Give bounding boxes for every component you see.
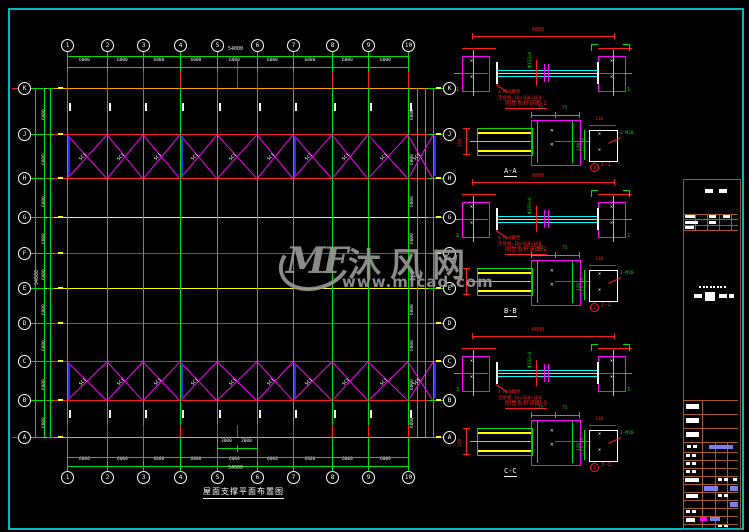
section-0-beam-axis	[470, 141, 531, 142]
tierod-0-stub-l	[454, 73, 462, 74]
col-leader-top-10	[408, 51, 409, 58]
section-2-column-flange-l	[537, 421, 538, 463]
section-0-column-flange-r	[572, 121, 573, 163]
tierod-1-cut-mark-r: 2	[627, 236, 630, 237]
titleblock-line	[684, 414, 738, 415]
tierod-2-cut-flag-r	[629, 344, 630, 351]
tierod-0-column-axis-l	[473, 50, 474, 96]
section-2-beam-axis	[470, 441, 531, 442]
titleblock-text-blob	[686, 432, 699, 437]
col-red-top-8	[332, 72, 333, 88]
titleblock-text-blob	[295, 410, 297, 418]
left-eave-line-1	[35, 88, 36, 437]
section-2-dim-top-t1	[531, 412, 532, 418]
top-bay-dim-4: 6000	[229, 60, 240, 61]
row-tick-J	[58, 133, 63, 135]
section-1-bolt-mark-1: ✕	[550, 270, 554, 271]
top-bay-dim-0: 6000	[79, 60, 90, 61]
section-0-dim-top-t3	[579, 112, 580, 118]
section-0-plate-dim-left	[584, 130, 585, 160]
tierod-0-cut-flag-r	[629, 44, 630, 51]
titleblock-text-blob	[685, 226, 694, 229]
tierod-2-dim-total	[472, 336, 614, 337]
titleblock-text-blob	[706, 286, 708, 288]
col-red-bottom-9	[368, 425, 369, 437]
grid-col-line-5	[217, 58, 218, 455]
row-tick-B	[58, 399, 63, 401]
grid-bubble-right-C: C	[443, 355, 456, 368]
bottom-bay-dim-5: 6000	[267, 459, 278, 460]
tierod-1-coupler-b	[548, 210, 549, 228]
right-bay-dim-6: 6000	[412, 340, 413, 351]
row-tick-A	[58, 436, 63, 438]
plan-title: 屋面支撑平面布置图	[203, 486, 284, 499]
tierod-2-column-axis-l	[473, 350, 474, 396]
titleblock-text-blob	[685, 221, 698, 224]
titleblock-text-blob	[109, 410, 111, 418]
grid-bubble-left-J: J	[18, 128, 31, 141]
tierod-0-cut-mark-r: 1	[627, 90, 630, 91]
tierod-1-note-1: 4-M20螺栓	[498, 238, 521, 239]
col-red-bottom-10	[408, 425, 409, 437]
tierod-1-cut-flag-l	[591, 190, 592, 197]
section-2-column-flange-r	[572, 421, 573, 463]
left-dim-line	[50, 88, 51, 437]
titleblock-text-blob	[686, 470, 690, 473]
top-bay-dim-8: 6000	[380, 60, 391, 61]
tierod-1-column-mid-l	[462, 219, 488, 220]
tierod-1-column-axis-l	[473, 196, 474, 242]
grid-bubble-right-K: K	[443, 82, 456, 95]
tierod-2-cut-flag-l2	[591, 344, 598, 345]
titleblock-line	[684, 460, 738, 461]
row-tick-r-B	[436, 399, 441, 401]
tierod-1-column-l	[462, 202, 490, 238]
grid-bubble-right-D: D	[443, 317, 456, 330]
tierod-1-dim-total-text: 6000	[532, 176, 544, 177]
tierod-0-cut-flag-r2	[623, 44, 630, 45]
brace-blue-strut	[181, 363, 183, 398]
tierod-0-dim-tick-l	[472, 33, 473, 39]
titleblock-text-blob	[370, 410, 372, 418]
grid-col-line-3	[143, 58, 144, 455]
tierod-2-bolt-mark-l2: ✕	[470, 377, 473, 378]
row-tick-r-G	[436, 216, 441, 218]
tierod-1-pipe-dim	[536, 206, 537, 232]
tierod-2-dim-sub-r	[598, 348, 632, 349]
titleblock-text-blob	[685, 478, 699, 482]
section-2-plate-dim-top	[589, 425, 616, 426]
titleblock-text-blob	[410, 103, 412, 111]
section-1-label: B-B	[504, 307, 517, 317]
section-2-label: C-C	[504, 467, 517, 477]
grid-bubble-right-J: J	[443, 128, 456, 141]
section-2-bolt-mark-1: ✕	[550, 430, 554, 431]
section-2-plate-bolt-1: ✕	[598, 434, 601, 435]
titleblock-vline	[719, 214, 720, 230]
section-0-dim-v-tick1	[463, 128, 470, 129]
titleblock-text-blob	[699, 286, 701, 288]
grid-bubble-bottom-6: 6	[251, 471, 264, 484]
grid-row-leader-C	[29, 361, 44, 362]
titleblock-text-blob	[717, 286, 719, 288]
col-red-bottom-6	[257, 425, 258, 437]
row-tick-G	[58, 216, 63, 218]
tierod-2-pipe-spec: Φ133×4	[530, 352, 531, 368]
section-1-plate-label: 2-2	[601, 305, 611, 306]
titleblock-text-blob	[686, 494, 698, 498]
titleblock-text-blob	[182, 103, 184, 111]
section-1-dim-top-a: 75	[538, 248, 543, 249]
tierod-0-pipe-dim	[536, 60, 537, 86]
top-bay-dim-7: 6000	[342, 60, 353, 61]
section-2-beam-flange-top	[478, 432, 531, 434]
section-2-dim-top-t2	[555, 412, 556, 418]
tierod-2-cut-mark-r: 3	[627, 390, 630, 391]
col-red-top-4	[180, 72, 181, 88]
col-red-top-3	[143, 72, 144, 88]
tierod-2-pipe-dim	[536, 360, 537, 386]
tierod-1-bolt-mark-l2: ✕	[470, 223, 473, 224]
titleblock-line	[684, 428, 738, 429]
section-0-beam-flange-top	[478, 132, 531, 134]
col-red-bottom-2	[107, 425, 108, 437]
tierod-0-bolt-mark-l1: ✕	[470, 61, 473, 62]
grid-bubble-top-8: 8	[326, 39, 339, 52]
section-1-dim-top-t2	[555, 252, 556, 258]
grid-bubble-bottom-3: 3	[137, 471, 150, 484]
row-tick-K	[58, 87, 63, 89]
titleblock-text-blob	[718, 494, 722, 497]
titleblock-line	[684, 508, 738, 509]
section-1-bolt-note: 2-M20	[620, 273, 634, 274]
titleblock-text-blob	[295, 103, 297, 111]
tierod-1-column-axis-r	[613, 196, 614, 242]
titleblock-text-blob	[703, 286, 705, 288]
section-0-bolt-note: 3-M20	[620, 133, 634, 134]
tierod-2-dim-sub-l	[462, 348, 496, 349]
tierod-2-dim-tick-r	[614, 333, 615, 339]
titleblock-text-blob	[729, 294, 734, 298]
grid-bubble-bottom-7: 7	[287, 471, 300, 484]
titleblock-text-blob	[700, 517, 707, 521]
section-2-dim-v-tick1	[463, 428, 470, 429]
col-red-bottom-3	[143, 425, 144, 437]
grid-bubble-top-6: 6	[251, 39, 264, 52]
titleblock-text-blob	[709, 445, 733, 449]
titleblock-text-blob	[219, 410, 221, 418]
section-2-plate-dim-w: 110	[595, 419, 603, 420]
titleblock-line	[684, 400, 738, 401]
section-0-plate-label-circle: 1	[590, 163, 599, 172]
titleblock-vline	[702, 400, 703, 528]
grid-bubble-top-4: 4	[174, 39, 187, 52]
titleblock-text-blob	[686, 418, 699, 423]
titleblock-text-blob	[705, 292, 715, 301]
bottom-bay-dim-8: 6000	[380, 459, 391, 460]
brace-label: SC1	[306, 379, 312, 385]
grid-bubble-bottom-2: 2	[101, 471, 114, 484]
bottom-dim-line-bays	[67, 457, 408, 458]
grid-bubble-top-2: 2	[101, 39, 114, 52]
grid-row-line-H	[33, 178, 446, 179]
titleblock-text-blob	[713, 286, 715, 288]
top-dim-tick-10	[408, 63, 409, 71]
col-red-top-7	[293, 72, 294, 88]
grid-bubble-right-H: H	[443, 172, 456, 185]
tierod-1-bolt-mark-r1: ✕	[610, 207, 613, 208]
row-tick-r-H	[436, 177, 441, 179]
mid-col-red-bottom	[237, 425, 238, 437]
tierod-0-column-axis-r	[613, 50, 614, 96]
section-0-plate-dim-h: 120	[579, 143, 580, 151]
section-1-leader	[555, 281, 591, 282]
titleblock-line	[684, 230, 738, 231]
section-0-leader	[555, 141, 591, 142]
titleblock-text-blob	[259, 410, 261, 418]
section-1-plate-dim-left	[584, 270, 585, 300]
tierod-0-end-plate-r	[597, 62, 599, 84]
grid-bubble-top-5: 5	[211, 39, 224, 52]
brace-blue-strut	[181, 136, 183, 176]
col-red-bottom-7	[293, 425, 294, 437]
mid-dim-2: 3000	[241, 441, 252, 442]
tierod-0-dim-total-text: 6000	[532, 30, 544, 31]
grid-bubble-top-10: 10	[402, 39, 415, 52]
section-0-plate-label: 1-1	[601, 165, 611, 166]
titleblock-text-blob	[709, 221, 716, 224]
section-2-bolt-mark-2: ✕	[550, 444, 554, 445]
row-tick-E	[58, 287, 63, 289]
grid-bubble-left-D: D	[18, 317, 31, 330]
titleblock-text-blob	[705, 189, 713, 193]
grid-bubble-right-A: A	[443, 431, 456, 444]
section-0-label: A-A	[504, 167, 517, 177]
titleblock-vline	[731, 214, 732, 230]
bottom-bay-dim-3: 6000	[191, 459, 202, 460]
grid-row-line-A	[33, 437, 446, 438]
tierod-1-dim-tick-r	[614, 179, 615, 185]
section-2-side-note: PL-10	[582, 437, 583, 451]
section-1-column-flange-r	[572, 261, 573, 303]
brace-blue-strut	[294, 363, 296, 398]
titleblock-text-blob	[724, 478, 728, 481]
tierod-0-column-mid-l	[462, 73, 488, 74]
row-tick-r-K	[436, 87, 441, 89]
tierod-1-dim-sub-r	[598, 194, 632, 195]
titleblock-text-blob	[693, 445, 697, 448]
mid-dim-tick-a	[217, 445, 218, 452]
section-1-plate-label-circle: 2	[590, 303, 599, 312]
section-0-plate-outline	[589, 130, 618, 162]
titleblock-text-blob	[719, 294, 727, 298]
titleblock-text-blob	[692, 510, 696, 513]
grid-bubble-top-7: 7	[287, 39, 300, 52]
right-bay-dim-8: 6000	[412, 417, 413, 428]
tierod-0-bolt-mark-l2: ✕	[470, 77, 473, 78]
top-bay-dim-1: 6000	[117, 60, 128, 61]
tierod-2-column-mid-l	[462, 373, 488, 374]
tierod-2-bolt-mark-r1: ✕	[610, 361, 613, 362]
section-1-dim-top-b: 75	[562, 248, 567, 249]
row-tick-C	[58, 360, 63, 362]
section-1-side-note: PL-10	[582, 277, 583, 291]
right-bay-dim-5: 6000	[412, 304, 413, 315]
tierod-1-end-plate-r	[597, 208, 599, 230]
section-1-plate-dim-h: 120	[579, 283, 580, 291]
grid-bubble-bottom-8: 8	[326, 471, 339, 484]
section-2-plate-label-circle: 3	[590, 463, 599, 472]
col-red-top-5	[217, 72, 218, 88]
tierod-1-cut-flag-r2	[623, 190, 630, 191]
section-2-dim-top-a: 75	[538, 408, 543, 409]
titleblock-text-blob	[692, 462, 696, 465]
tierod-1-stub-r	[624, 219, 632, 220]
section-2-plate-dim-h: 120	[579, 443, 580, 451]
grid-col-line-2	[107, 58, 108, 455]
tierod-2-dim-tick-l	[472, 333, 473, 339]
brace-blue-strut	[434, 363, 436, 398]
titleblock-text-blob	[730, 486, 738, 491]
grid-row-line-B	[33, 400, 446, 401]
tierod-0-cut-mark-l: 1	[456, 90, 459, 91]
left-eave-line-2	[44, 88, 45, 437]
grid-bubble-top-3: 3	[137, 39, 150, 52]
tierod-0-cut-flag-l2	[591, 44, 598, 45]
titleblock-text-blob	[685, 215, 695, 218]
section-2-dim-v-text: 150	[460, 439, 461, 447]
section-1-bolt-mark-2: ✕	[550, 284, 554, 285]
tierod-0-bolt-mark-r1: ✕	[610, 61, 613, 62]
section-0-dim-v-line	[466, 128, 467, 154]
col-red-top-2	[107, 72, 108, 88]
grid-bubble-top-9: 9	[362, 39, 375, 52]
titleblock-line	[684, 484, 738, 485]
titleblock-text-blob	[710, 517, 720, 521]
tierod-0-coupler-a	[544, 64, 545, 82]
brace-label: SC1	[192, 379, 198, 385]
titleblock-text-blob	[686, 454, 690, 457]
titleblock-text-blob	[720, 286, 722, 288]
grid-bubble-left-B: B	[18, 394, 31, 407]
titleblock-line	[684, 524, 738, 525]
titleblock-text-blob	[686, 404, 699, 409]
grid-bubble-left-F: F	[18, 247, 31, 260]
brace-blue-strut	[68, 363, 70, 398]
section-0-dim-top-t1	[531, 112, 532, 118]
tierod-2-stub-r	[624, 373, 632, 374]
right-bay-dim-0: 6000	[412, 109, 413, 120]
titleblock-line	[684, 492, 738, 493]
titleblock-text-blob	[710, 286, 712, 288]
titleblock-text-blob	[182, 410, 184, 418]
bottom-bay-dim-6: 6000	[305, 459, 316, 460]
grid-row-line-K	[33, 88, 446, 89]
titleblock-text-blob	[719, 189, 727, 193]
tierod-0-note-1: 4-M20螺栓	[498, 92, 521, 93]
titleblock-text-blob	[687, 445, 691, 448]
section-1-plate-outline	[589, 270, 618, 302]
grid-bubble-bottom-10: 10	[402, 471, 415, 484]
section-2-plate-dim-left	[584, 430, 585, 460]
titleblock-text-blob	[692, 470, 696, 473]
tierod-2-stub-l	[454, 373, 462, 374]
tierod-2-coupler-b	[548, 364, 549, 382]
bottom-dim-tick-10	[408, 454, 409, 461]
tierod-2-end-plate-r	[597, 362, 599, 384]
grid-bubble-left-G: G	[18, 211, 31, 224]
titleblock-text-blob	[145, 410, 147, 418]
col-red-top-9	[368, 72, 369, 88]
titleblock-text-blob	[718, 525, 722, 527]
titleblock-text-blob	[69, 103, 71, 111]
top-dim-line-total	[67, 56, 408, 57]
section-0-plate-bolt-1: ✕	[598, 134, 601, 135]
section-0-dim-top-a: 75	[538, 108, 543, 109]
mid-dim-tick-c	[257, 445, 258, 452]
tierod-2-note-1: 4-M20螺栓	[498, 392, 521, 393]
section-2-dim-top-b: 75	[562, 408, 567, 409]
col-red-top-6	[257, 72, 258, 88]
titleblock-vline	[715, 442, 716, 528]
section-1-plate-bolt-2: ✕	[598, 290, 601, 291]
top-bay-dim-5: 6000	[267, 60, 278, 61]
titleblock-text-blob	[694, 294, 702, 298]
col-red-bottom-4	[180, 425, 181, 437]
titleblock-text-blob	[686, 518, 695, 522]
tierod-2-bolt-mark-r2: ✕	[610, 377, 613, 378]
grid-row-leader-F	[29, 253, 44, 254]
tierod-1-dim-total	[472, 182, 614, 183]
titleblock-text-blob	[219, 103, 221, 111]
titleblock-line	[684, 468, 738, 469]
col-red-bottom-8	[332, 425, 333, 437]
section-0-plate-dim-w: 110	[595, 119, 603, 120]
titleblock-text-blob	[145, 103, 147, 111]
section-0-side-note: PL-10	[582, 137, 583, 151]
titleblock-text-blob	[334, 410, 336, 418]
tierod-1-dim-sub-l	[462, 194, 496, 195]
titleblock-text-blob	[718, 478, 722, 481]
tierod-2-column-axis-r	[613, 350, 614, 396]
bottom-bay-dim-1: 6000	[117, 459, 128, 460]
section-1-dim-top-t3	[579, 252, 580, 258]
grid-row-line-G	[33, 217, 446, 218]
section-1-plate-bolt-1: ✕	[598, 274, 601, 275]
brace-label: SC1	[414, 379, 420, 385]
bottom-bay-dim-4: 6000	[229, 459, 240, 460]
tierod-1-cut-flag-l2	[591, 190, 598, 191]
top-bay-dim-2: 6000	[154, 60, 165, 61]
section-2-plate-bolt-2: ✕	[598, 450, 601, 451]
section-2-bolt-note: 2-M20	[620, 433, 634, 434]
left-dim-tick-A	[47, 437, 54, 438]
grid-row-leader-D	[29, 323, 44, 324]
mid-col-red-top	[237, 58, 238, 88]
tierod-2-cut-flag-l	[591, 344, 592, 351]
tierod-0-stub-r	[624, 73, 632, 74]
tierod-1-pipe-spec: Φ133×4	[530, 198, 531, 214]
grid-row-leader-H	[29, 178, 44, 179]
col-red-top-1	[67, 72, 68, 88]
section-1-plate-dim-w: 110	[595, 259, 603, 260]
section-0-bolt-mark-1: ✕	[550, 130, 554, 131]
titleblock-line	[684, 500, 738, 501]
tierod-1-bolt-mark-l1: ✕	[470, 207, 473, 208]
titleblock-line	[684, 476, 738, 477]
titleblock-text-blob	[724, 525, 728, 527]
watermark-logo: MF	[286, 240, 345, 282]
